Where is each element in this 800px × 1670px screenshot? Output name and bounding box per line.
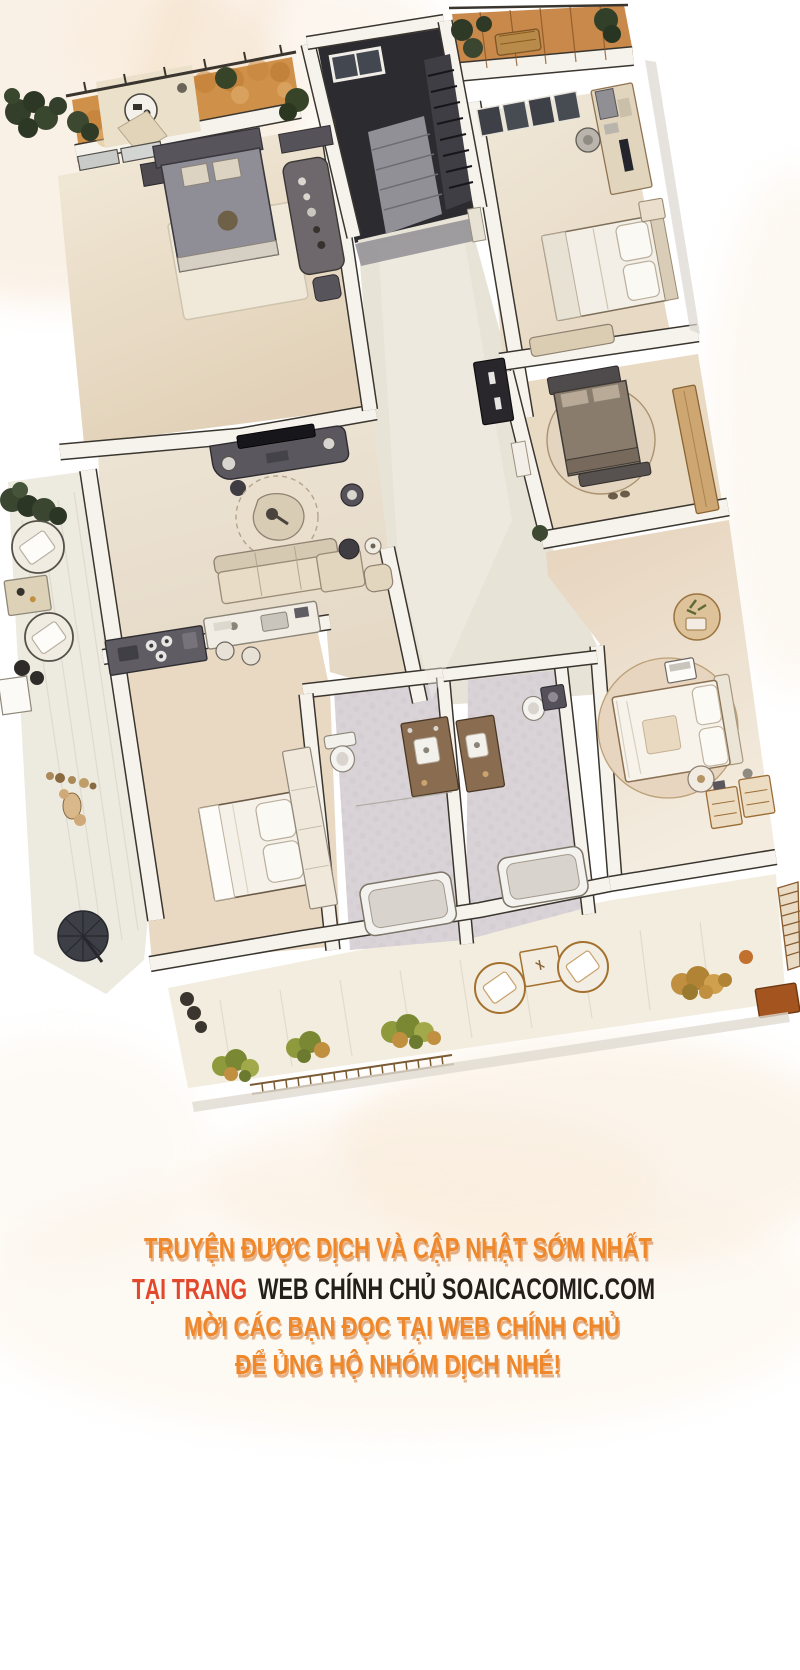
svg-text:TRUYỆN ĐƯỢC DỊCH VÀ CẬP NHẬT S: TRUYỆN ĐƯỢC DỊCH VÀ CẬP NHẬT SỚM NHẤT bbox=[144, 1231, 652, 1265]
svg-text:TẠI TRANG: TẠI TRANG bbox=[132, 1274, 247, 1306]
svg-text:MỜI CÁC BẠN ĐỌC TẠI WEB CHÍNH: MỜI CÁC BẠN ĐỌC TẠI WEB CHÍNH CHỦ bbox=[184, 1310, 620, 1342]
svg-text:WEB CHÍNH CHỦ SOAICACOMIC.COM: WEB CHÍNH CHỦ SOAICACOMIC.COM bbox=[258, 1272, 655, 1306]
svg-text:ĐỂ ỦNG HỘ NHÓM DỊCH NHÉ!: ĐỂ ỦNG HỘ NHÓM DỊCH NHÉ! bbox=[235, 1348, 561, 1380]
